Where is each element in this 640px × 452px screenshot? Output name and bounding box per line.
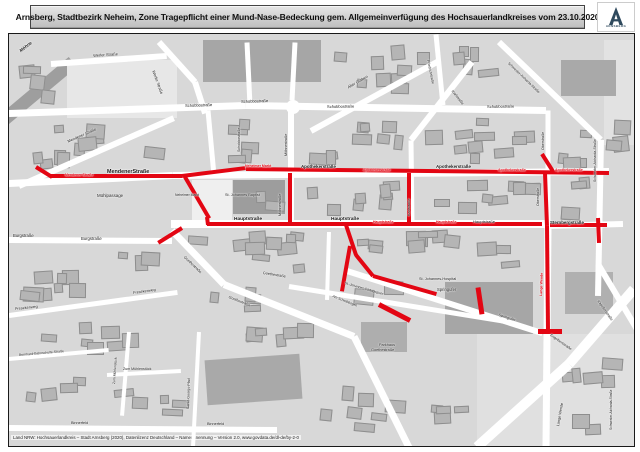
map-building: [131, 397, 148, 409]
mask-zone-segment: [538, 329, 562, 334]
map-street-label: Mendener Straße: [65, 174, 93, 178]
map-street-label: Burgstraße: [13, 234, 34, 238]
map-building: [470, 47, 479, 62]
map-street-label: Oberstraße: [542, 132, 546, 150]
arnsberg-logo: ARNSBERG: [597, 2, 635, 32]
map-street-label: Zum Mühlenstück: [123, 368, 151, 372]
map-street-label: Schobbostraße: [327, 105, 354, 109]
map-building: [79, 322, 93, 335]
map-building: [572, 414, 591, 429]
map-building: [467, 180, 488, 191]
map-building: [285, 234, 295, 244]
map-building: [418, 230, 438, 238]
map-building: [371, 412, 388, 422]
map-street-label: Goethestraße: [262, 272, 286, 279]
map-building: [376, 134, 390, 145]
map-street-label: Goethestraße: [371, 349, 394, 353]
map-street-label: Schwester-Aicharda-Straße: [594, 139, 598, 182]
map-area-shape: [203, 40, 321, 82]
map-building: [141, 251, 160, 266]
street-segment: [206, 110, 217, 175]
map-building: [255, 327, 267, 335]
map-building: [23, 66, 41, 74]
map-building: [408, 239, 425, 253]
map-building: [613, 120, 630, 135]
map-building: [436, 406, 451, 415]
map-building: [57, 273, 67, 284]
map-building: [160, 395, 170, 404]
map-building: [297, 323, 315, 339]
map-building: [351, 134, 371, 145]
map-building: [32, 151, 43, 165]
arnsberg-a-icon: [608, 7, 624, 25]
map-building: [444, 234, 462, 249]
map-street-label: Binnerfeld: [71, 422, 88, 426]
map-area-shape: [205, 354, 303, 406]
map-building: [307, 187, 319, 200]
map-building: [320, 408, 334, 422]
map-building: [476, 118, 489, 126]
map-building: [54, 125, 64, 134]
map-street-label: Möhnestraße: [279, 194, 283, 216]
map-street-label: Springufer: [437, 288, 456, 292]
map-building: [467, 140, 483, 154]
map-street-label: Möhnestraße: [285, 134, 289, 156]
map-building: [501, 260, 521, 269]
map-building: [470, 153, 480, 164]
map-building: [511, 136, 526, 145]
map-building: [474, 132, 495, 141]
map-building: [601, 357, 623, 370]
map-street-label: Karlstraße: [408, 198, 412, 216]
map-street-label: Burgstraße: [81, 237, 102, 241]
map-street-label: Neheimer Markt: [175, 194, 199, 197]
map-street-label: Sternbergstraße: [550, 221, 584, 225]
map-street-label: St. Johannes Baptist: [225, 194, 260, 198]
map-building: [382, 121, 397, 133]
map-building: [496, 245, 512, 254]
map-street-label: Apothekerstraße: [498, 169, 526, 173]
map-document-page: Arnsberg, Stadtbezirk Neheim, Zone Trage…: [0, 0, 640, 452]
map-building: [342, 386, 356, 402]
map-street-label: Möhne: [19, 41, 33, 53]
map-building: [333, 52, 346, 63]
map-building: [560, 206, 579, 220]
map-street-label: Schobbostraße: [238, 128, 242, 152]
map-street-label: St. Johannes-Hospital: [419, 278, 456, 282]
map-building: [357, 392, 373, 406]
map-street-label: Hauptstraße: [373, 221, 393, 225]
map-building: [40, 388, 57, 403]
map-building: [34, 270, 54, 285]
attribution-text: Land NRW: Hochsauerlandkreis – Stadt Arn…: [11, 435, 301, 440]
street-segment: [9, 425, 277, 433]
map-area-shape: [561, 60, 616, 96]
map-building: [245, 242, 265, 256]
map-building: [359, 123, 369, 133]
map-building: [606, 139, 623, 151]
map-street-label: Karlstraße: [450, 90, 464, 106]
map-building: [117, 252, 128, 260]
map-street-label: Sankt-Georgs-Pfad: [187, 378, 192, 409]
map-building: [481, 194, 493, 204]
map-building: [19, 290, 40, 302]
map-building: [29, 74, 46, 91]
map-building: [60, 382, 78, 393]
map-building: [40, 89, 55, 105]
map-street-label: Hauptstraße: [473, 220, 495, 224]
map-street-label: Oberstraße: [537, 188, 541, 206]
map-building: [494, 147, 514, 158]
map-street-label: MendenerStraße: [107, 170, 149, 175]
map-building: [355, 193, 366, 205]
map-street-label: Apothekerstraße: [436, 165, 471, 169]
title-bar: Arnsberg, Stadtbezirk Neheim, Zone Trage…: [30, 5, 585, 29]
map-building: [454, 405, 469, 413]
map-building: [390, 44, 405, 61]
map-building: [69, 283, 86, 298]
map-building: [379, 184, 392, 199]
map-building: [425, 130, 444, 146]
map-building: [583, 371, 604, 385]
map-building: [434, 199, 450, 207]
map-street-label: Neheimer Markt: [245, 165, 271, 169]
map-building: [478, 68, 499, 78]
map-building: [369, 244, 384, 254]
map-building: [41, 333, 57, 342]
map-building: [458, 202, 477, 214]
map-building: [393, 134, 404, 150]
map-canvas: N M. 1 : 2.000 Land NRW: Hochsauerlandkr…: [8, 33, 635, 447]
map-building: [346, 406, 362, 420]
map-building: [144, 146, 166, 161]
map-building: [371, 56, 384, 71]
map-street-label: Apothekerstraße: [301, 165, 336, 169]
map-building: [353, 422, 375, 433]
map-building: [455, 129, 474, 140]
map-building: [571, 180, 587, 189]
logo-caption: ARNSBERG: [606, 25, 626, 28]
map-street-label: Mühlpassage: [97, 194, 123, 198]
map-building: [101, 326, 120, 339]
map-building: [571, 368, 582, 384]
map-building: [228, 155, 247, 164]
map-street-label: Hauptstraße: [436, 221, 456, 225]
map-building: [452, 51, 466, 65]
street-segment: [310, 59, 439, 133]
map-building: [454, 144, 468, 154]
page-title: Arnsberg, Stadtbezirk Neheim, Zone Trage…: [16, 12, 600, 22]
map-building: [327, 204, 342, 216]
map-building: [162, 408, 183, 416]
map-street-label: Schobbostraße: [487, 105, 514, 109]
map-street-label: Hauptstraße: [331, 218, 359, 223]
map-building: [25, 392, 36, 403]
map-building: [209, 292, 220, 304]
map-building: [292, 264, 305, 274]
mask-zone-segment: [288, 173, 292, 223]
map-street-label: Apothekerstraße: [555, 169, 583, 173]
map-street-label: Schwester-Aicharda-Straße: [610, 390, 613, 431]
map-street-label: Binnerfeld: [207, 423, 224, 427]
map-street-label: Apothekerstraße: [363, 169, 391, 173]
map-street-label: Hauptstraße: [234, 218, 262, 223]
map-building: [265, 237, 281, 251]
map-street-label: Zum Mühlenstück: [113, 357, 118, 384]
map-building: [476, 242, 497, 257]
